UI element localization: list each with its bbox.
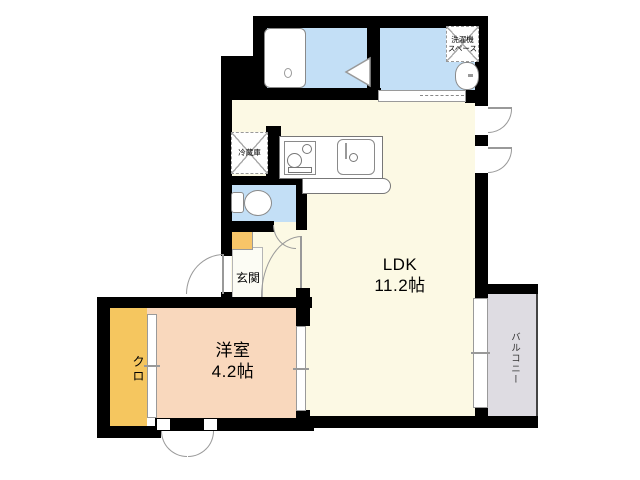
balcony-window-tick (471, 352, 490, 354)
stove-burner-small (302, 144, 312, 154)
wall-bath-bottom (221, 88, 381, 100)
refrigerator-label: 冷蔵庫 (229, 148, 270, 157)
shoe-cabinet (231, 229, 253, 250)
wall-bedroom-top (97, 297, 312, 308)
opening-right-door-2 (475, 146, 488, 173)
bedroom-south-door-left-arc (161, 431, 187, 457)
bedroom-name: 洋室 (183, 340, 283, 361)
wall-bedroom-bottom (155, 418, 314, 431)
bedroom-label: 洋室 4.2帖 (183, 340, 283, 382)
washer-space-label-line2: スペース (445, 44, 480, 53)
wall-balcony-top (475, 284, 538, 294)
kitchen-sink-drain (349, 153, 358, 162)
bathroom-folding-door-icon (344, 56, 372, 88)
toilet-tank (231, 192, 244, 213)
wall-toilet-bottom (221, 221, 274, 232)
stove-burner-large (287, 153, 302, 168)
washer-space-label: 洗濯機 スペース (445, 35, 480, 53)
toilet-bowl (244, 190, 272, 216)
washer-space-label-line1: 洗濯機 (445, 35, 480, 44)
bathtub-drain (284, 68, 292, 78)
bedroom-size: 4.2帖 (183, 361, 283, 382)
ldk-label: LDK 11.2帖 (350, 254, 450, 296)
washbasin (455, 62, 479, 90)
exterior-door-1-arc (488, 109, 512, 133)
ldk-door-leaf (300, 236, 302, 288)
ldk-name: LDK (350, 254, 450, 275)
kitchen-faucet (345, 143, 347, 159)
balcony-label: バルコニー (499, 315, 521, 401)
bedroom-sliding-door-tick (293, 368, 309, 370)
opening-bedroom-door-2 (204, 419, 217, 430)
opening-bedroom-door-1 (157, 419, 170, 430)
entrance-door-leaf (222, 254, 224, 294)
closet-label: クロ (109, 346, 147, 392)
entrance-door-arc (186, 254, 224, 294)
exterior-door-2-arc (488, 149, 512, 173)
stove-grill (288, 167, 312, 173)
floorplan-canvas: 洗濯機 スペース 冷蔵庫 LDK 11.2帖 洋室 4.2帖 玄関 クロ バルコ… (0, 0, 640, 480)
kitchen-counter-return (302, 178, 391, 194)
bedroom-south-door-right-arc (188, 431, 214, 457)
entrance-label: 玄関 (226, 269, 270, 286)
washbasin-faucet (468, 74, 473, 77)
wall-ldk-bottom (296, 416, 538, 428)
opening-right-door-1 (475, 106, 488, 135)
wall-closet-bottom (97, 426, 161, 438)
ldk-size: 11.2帖 (350, 275, 450, 296)
washroom-sliding-door-track (420, 95, 464, 97)
bathtub (264, 28, 306, 88)
